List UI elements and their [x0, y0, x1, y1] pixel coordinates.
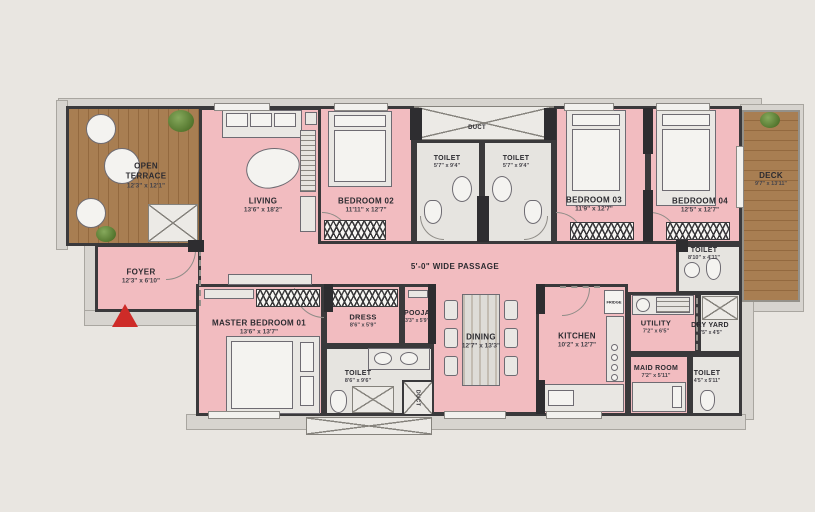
wardrobe [256, 289, 320, 307]
hob-burner [611, 344, 618, 351]
dining-chair [504, 328, 518, 348]
room-deck [742, 110, 800, 302]
wall-block [477, 196, 489, 242]
dining-chair [444, 300, 458, 320]
wc [330, 390, 347, 413]
room-label-toilet-a: TOILET 5'7" x 9'4" [434, 154, 461, 170]
cabinet [300, 196, 316, 232]
wall-block [643, 190, 653, 242]
wall-block [536, 284, 545, 314]
duct-bottom-label: DUCT [413, 390, 420, 406]
utility-sink [636, 298, 650, 312]
window [214, 103, 270, 111]
side-table [305, 112, 317, 125]
room-label-master-bedroom: MASTER BEDROOM 01 13'6" x 13'7" [212, 319, 306, 338]
sofa-cushion [226, 113, 248, 127]
room-toilet-maid [690, 354, 742, 416]
dining-chair [504, 300, 518, 320]
room-label-bedroom3: BEDROOM 03 11'9" x 12'7" [566, 196, 622, 215]
room-label-dining: DINING 12'7" x 13'3" [462, 333, 500, 352]
bed-mattress [572, 129, 620, 191]
room-label-toilet-master: TOILET 8'6" x 9'6" [345, 369, 372, 385]
lounge-chair [76, 198, 106, 228]
wall-block [676, 240, 688, 252]
bed-pillow [300, 376, 314, 406]
bed-pillow [334, 115, 386, 127]
window [564, 103, 614, 111]
wash-basin [452, 176, 472, 202]
lounge-chair [86, 114, 116, 144]
room-label-dry-yard: DRY YARD 4'5" x 4'5" [691, 321, 729, 337]
bed-mattress [334, 130, 386, 182]
room-label-deck: DECK 9'7" x 13'11" [755, 171, 787, 189]
floor-plan: OPEN TERRACE 12'3" x 12'1" LIVING 13'6" … [0, 0, 815, 512]
wardrobe [570, 222, 634, 240]
plant [96, 226, 116, 242]
hob-burner [611, 354, 618, 361]
ledge-right-lower [740, 300, 754, 420]
hob-burner [611, 364, 618, 371]
wc [424, 200, 442, 224]
wall-block [536, 380, 545, 414]
wall-block [188, 240, 204, 252]
wc [524, 200, 542, 224]
window [736, 146, 744, 208]
wash-basin [374, 352, 392, 365]
duct-top [414, 106, 554, 140]
room-label-maid: MAID ROOM 7'2" x 5'11" [634, 364, 678, 380]
window [656, 103, 710, 111]
bed-pillow [572, 114, 620, 126]
terrace-ac-ledge [148, 204, 198, 242]
duct-top-label: DUCT [468, 125, 486, 133]
room-label-foyer: FOYER 12'3" x 6'10" [122, 268, 160, 287]
dry-yard-shaft [702, 296, 738, 320]
opening-dashed [199, 250, 201, 306]
dining-chair [444, 356, 458, 376]
room-label-bedroom4: BEDROOM 04 12'5" x 12'7" [672, 197, 728, 216]
dining-chair [444, 328, 458, 348]
wall-block [643, 108, 653, 154]
bed-mattress [662, 129, 710, 191]
ledge-foyer-bottom [84, 310, 202, 326]
tv-shelf-unit [300, 130, 316, 192]
room-label-utility: UTILITY 7'2" x 6'5" [641, 319, 671, 336]
wc [700, 390, 715, 411]
entrance-arrow-icon [112, 304, 138, 327]
wash-basin [684, 262, 700, 278]
sofa-cushion [274, 113, 296, 127]
wash-basin [492, 176, 512, 202]
room-label-open-terrace: OPEN TERRACE 12'3" x 12'1" [115, 161, 177, 190]
window [546, 411, 602, 419]
wardrobe [666, 222, 730, 240]
room-label-kitchen: KITCHEN 10'2" x 12'7" [558, 332, 596, 351]
washing-machine [656, 297, 690, 313]
wall-block [410, 108, 422, 140]
dresser [204, 289, 254, 299]
wardrobe [328, 289, 398, 307]
wash-basin [400, 352, 418, 365]
bed-pillow [672, 386, 682, 408]
window [444, 411, 506, 419]
sofa-cushion [250, 113, 272, 127]
wardrobe [324, 220, 386, 240]
room-label-living: LIVING 13'6" x 18'2" [244, 197, 282, 216]
bed-pillow [300, 342, 314, 372]
room-label-toilet-b: TOILET 5'7" x 9'4" [503, 154, 530, 170]
shower-area [352, 386, 394, 413]
plant [168, 110, 194, 132]
room-label-toilet-bed4: TOILET 8'10" x 4'11" [688, 246, 720, 262]
planter-box [306, 417, 432, 435]
console [228, 274, 312, 285]
passage-label: 5'-0" WIDE PASSAGE [411, 262, 499, 272]
bed-mattress [231, 341, 293, 409]
bed-pillow [662, 114, 710, 126]
window [208, 411, 280, 419]
dining-chair [504, 356, 518, 376]
wall-block [324, 284, 333, 312]
pooja-shelf [408, 290, 428, 298]
room-label-bedroom2: BEDROOM 02 11'11" x 12'7" [338, 197, 394, 216]
room-label-toilet-maid: TOILET 4'5" x 5'11" [694, 369, 721, 385]
window [334, 103, 388, 111]
room-label-pooja: POOJA 3'3" x 5'9" [404, 309, 430, 325]
hob-burner [611, 374, 618, 381]
wall-block [544, 108, 556, 140]
room-label-dress: DRESS 8'6" x 5'9" [349, 313, 376, 330]
plant [760, 112, 780, 128]
fridge-label: FRIDGE [606, 299, 621, 304]
kitchen-sink [548, 390, 574, 406]
